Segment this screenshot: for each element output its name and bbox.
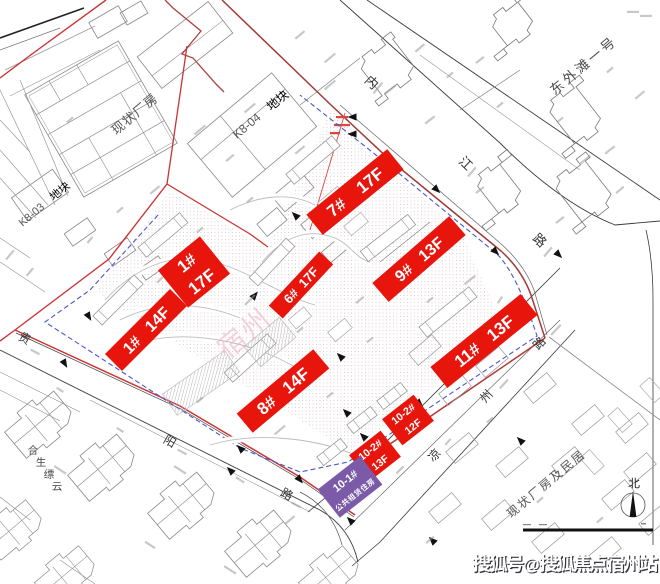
svg-text:@: @ [523, 555, 540, 574]
